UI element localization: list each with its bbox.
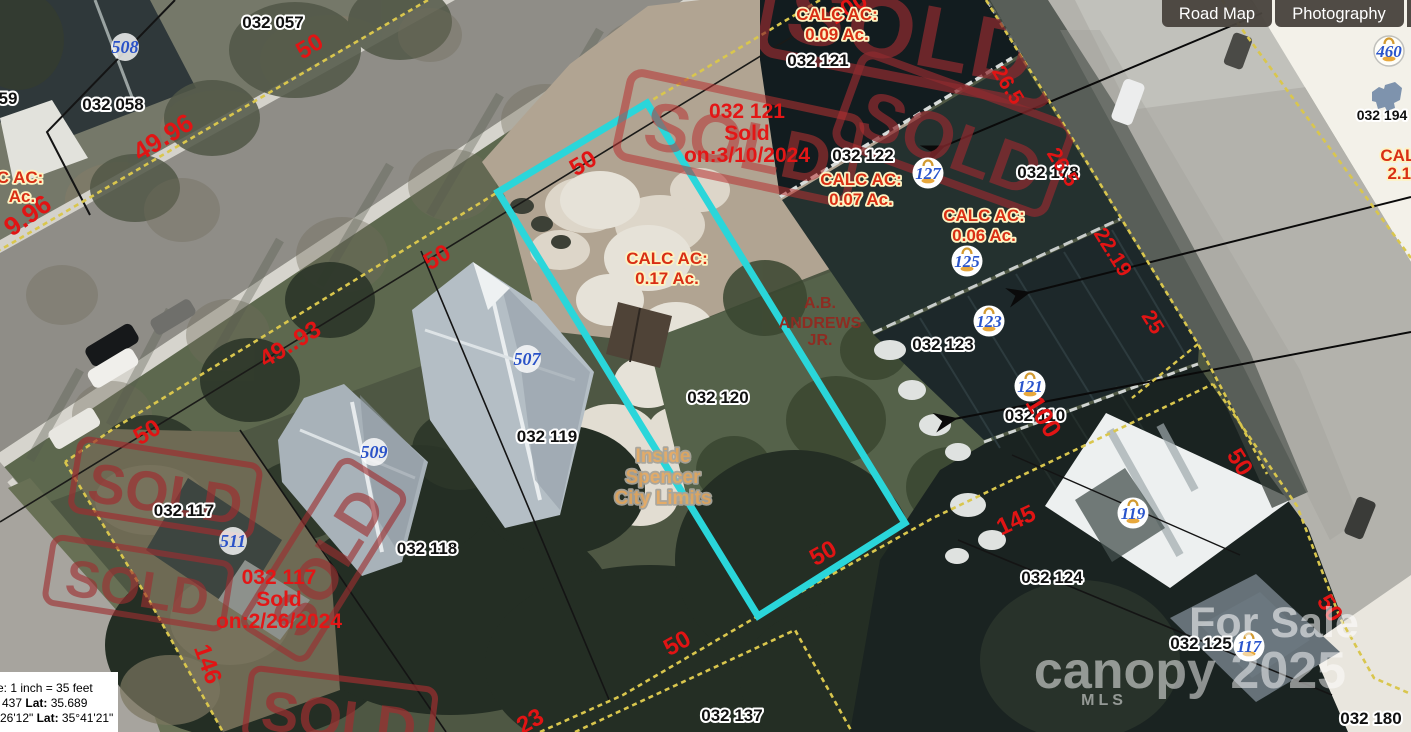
svg-text:032 119: 032 119	[517, 427, 578, 446]
svg-text:on:2/26/2024: on:2/26/2024	[216, 610, 342, 633]
svg-text:119: 119	[1121, 504, 1146, 523]
svg-text:on:3/10/2024: on:3/10/2024	[684, 144, 810, 167]
svg-text:For Sale: For Sale	[1189, 599, 1359, 647]
svg-text:460: 460	[1375, 42, 1402, 61]
svg-text:Sold: Sold	[256, 588, 302, 611]
svg-text:0.06 Ac.: 0.06 Ac.	[952, 226, 1016, 245]
svg-text:032 117: 032 117	[154, 501, 215, 520]
svg-text:032 121: 032 121	[787, 51, 848, 70]
svg-text:e: 1 inch = 35 feet: e: 1 inch = 35 feet	[0, 681, 93, 695]
svg-text:A.B.: A.B.	[804, 295, 836, 312]
svg-text:507: 507	[514, 349, 542, 369]
svg-text:437 Lat: 35.689: 437 Lat: 35.689	[2, 696, 88, 710]
svg-text:032 057: 032 057	[242, 13, 303, 32]
svg-text:511: 511	[220, 531, 246, 551]
svg-text:032 117: 032 117	[242, 566, 317, 589]
svg-text:CALC: CALC	[1380, 146, 1411, 165]
svg-text:Photography: Photography	[1292, 5, 1386, 23]
svg-text:0.09 Ac.: 0.09 Ac.	[805, 25, 869, 44]
svg-text:CALC AC:: CALC AC:	[796, 5, 878, 24]
svg-text:0.17 Ac.: 0.17 Ac.	[635, 269, 699, 288]
svg-text:ANDREWS: ANDREWS	[779, 315, 862, 332]
svg-text:Spencer: Spencer	[626, 467, 702, 488]
svg-text:032 058: 032 058	[82, 95, 143, 114]
svg-text:C AC:: C AC:	[0, 168, 43, 187]
svg-text:MLS: MLS	[1081, 692, 1127, 709]
svg-text:032 123: 032 123	[912, 335, 973, 354]
svg-text:0.07 Ac.: 0.07 Ac.	[829, 190, 893, 209]
svg-text:125: 125	[954, 252, 980, 271]
svg-text:121: 121	[1017, 377, 1043, 396]
svg-text:123: 123	[976, 312, 1002, 331]
svg-text:59: 59	[0, 89, 17, 108]
svg-text:032 180: 032 180	[1340, 709, 1401, 728]
svg-text:Sold: Sold	[724, 122, 770, 145]
svg-text:032 124: 032 124	[1021, 568, 1083, 587]
svg-text:032 137: 032 137	[701, 706, 762, 725]
svg-text:508: 508	[112, 37, 139, 57]
svg-text:Road Map: Road Map	[1179, 5, 1255, 23]
svg-text:509: 509	[361, 442, 388, 462]
svg-text:032 121: 032 121	[709, 100, 785, 123]
svg-text:032 122: 032 122	[832, 146, 893, 165]
svg-text:CALC AC:: CALC AC:	[943, 206, 1025, 225]
svg-text:CALC AC:: CALC AC:	[820, 170, 902, 189]
svg-text:032 194: 032 194	[1357, 107, 1408, 123]
svg-text:Ac.: Ac.	[9, 187, 35, 206]
svg-text:JR.: JR.	[808, 332, 833, 349]
svg-text:CALC AC:: CALC AC:	[626, 249, 708, 268]
svg-text:Inside: Inside	[636, 446, 691, 467]
svg-text:032 118: 032 118	[397, 539, 458, 558]
svg-text:26'12" Lat: 35°41'21": 26'12" Lat: 35°41'21"	[0, 711, 113, 725]
svg-text:City Limits: City Limits	[614, 488, 711, 509]
svg-text:127: 127	[915, 164, 942, 183]
svg-text:2.17: 2.17	[1387, 164, 1411, 183]
svg-text:032 120: 032 120	[687, 388, 748, 407]
